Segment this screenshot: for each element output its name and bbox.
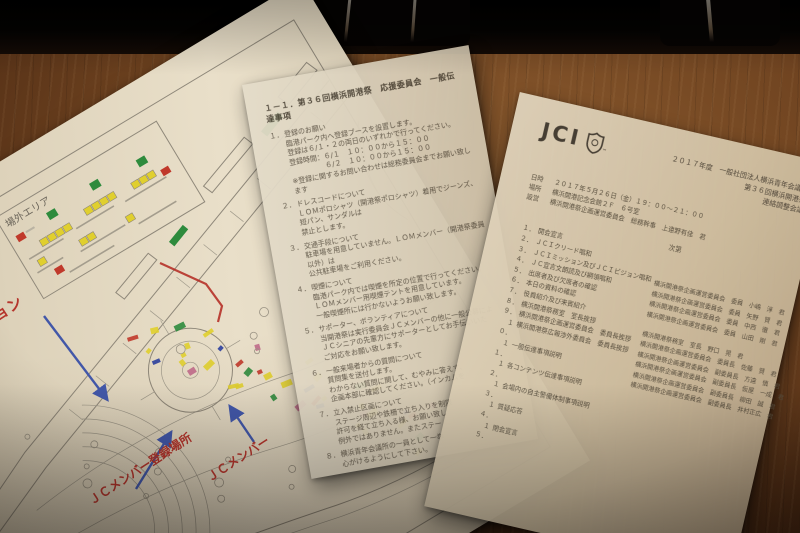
- map-terraces: [58, 373, 248, 533]
- photo-scene: 場外エリア: [0, 0, 800, 533]
- map-legend: 場外エリア: [0, 121, 205, 298]
- chair-silhouette: [660, 0, 780, 46]
- jci-logo-text: JCI: [539, 118, 583, 150]
- room-background: [0, 0, 800, 54]
- agenda-item-text: 閉会宣言: [489, 422, 519, 448]
- jci-trademark: ™: [601, 148, 607, 155]
